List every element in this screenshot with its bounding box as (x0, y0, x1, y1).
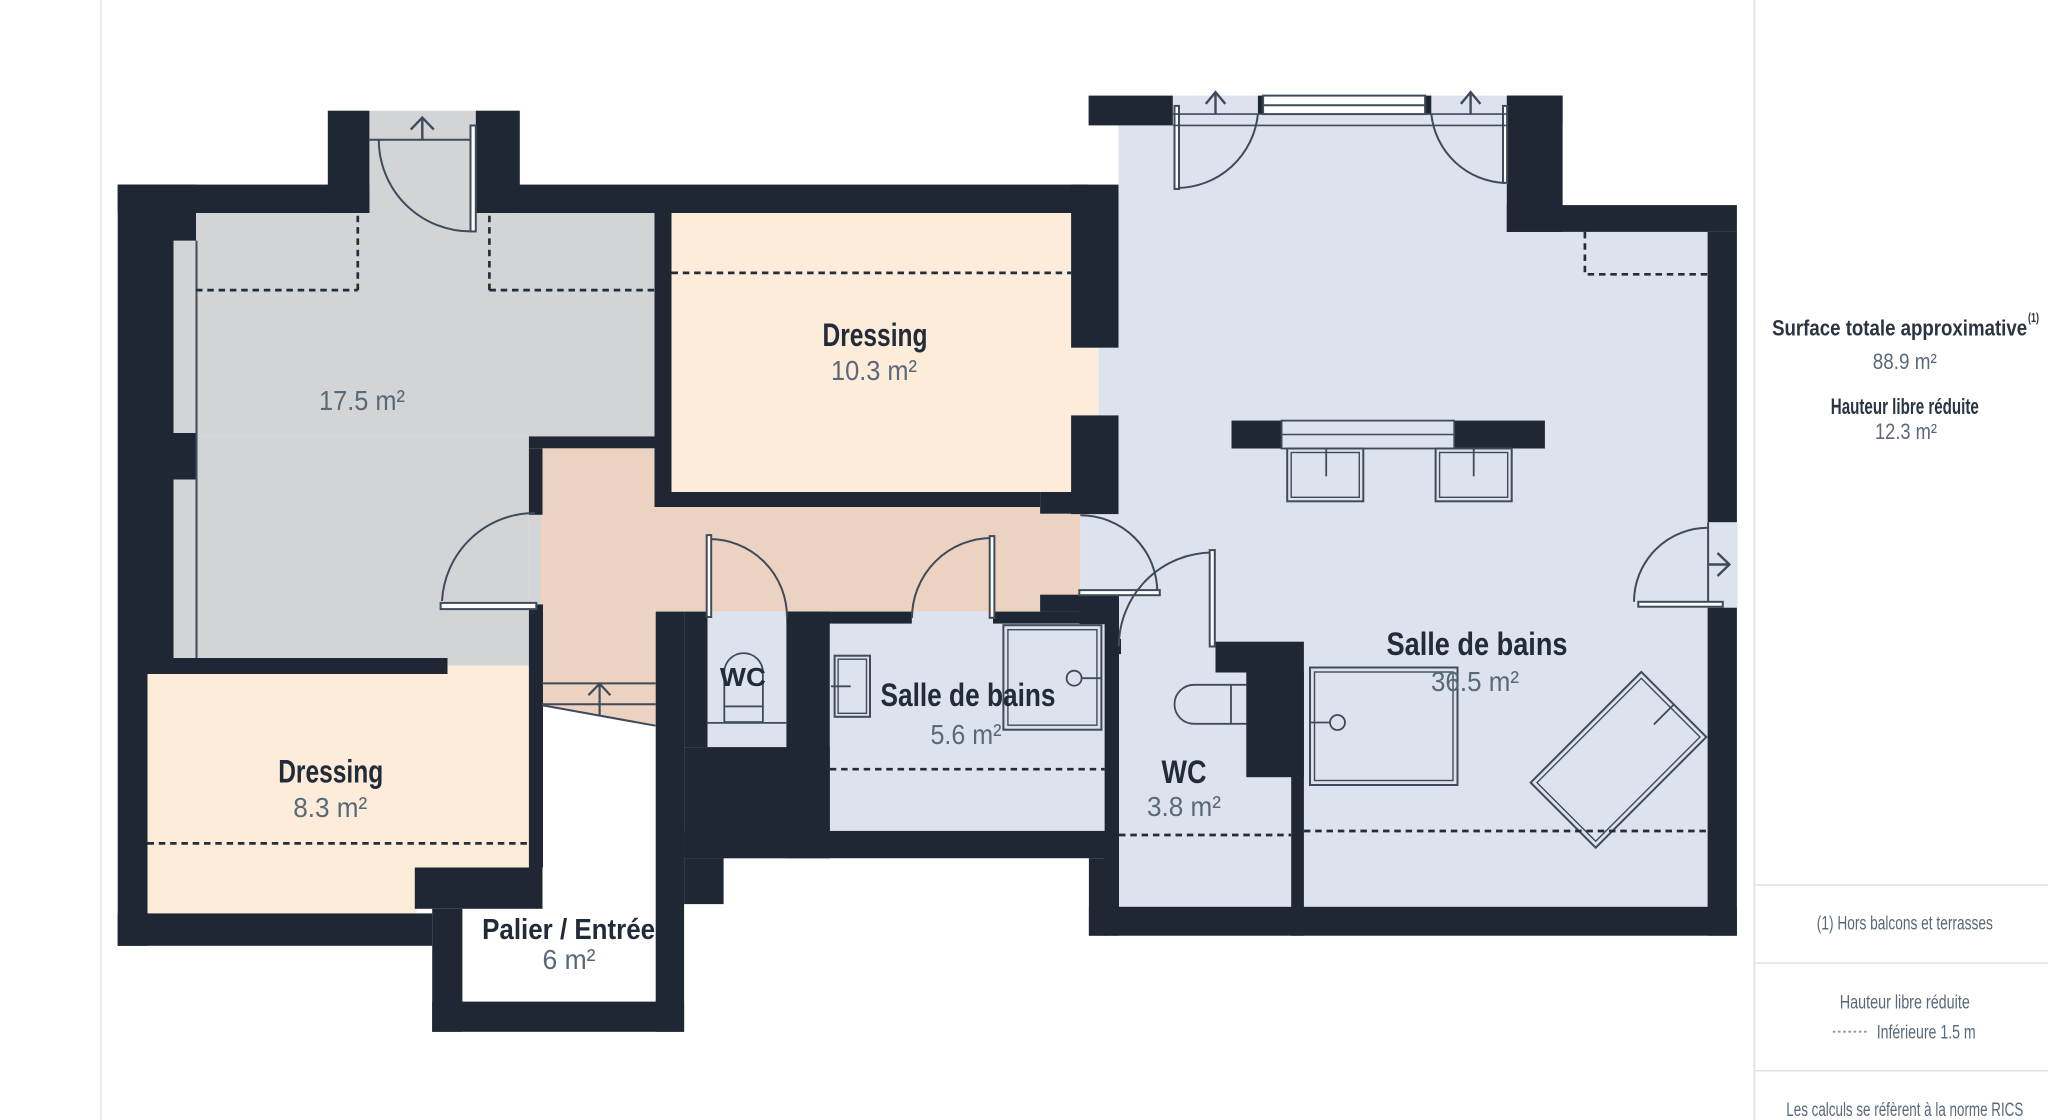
svg-text:88.9 m²: 88.9 m² (1873, 349, 1937, 374)
svg-text:8.3 m²: 8.3 m² (293, 792, 367, 823)
svg-text:WC: WC (720, 662, 766, 692)
svg-text:36.5 m²: 36.5 m² (1431, 666, 1519, 697)
svg-text:Salle de bains: Salle de bains (1387, 626, 1568, 662)
svg-text:Dressing: Dressing (278, 754, 383, 790)
svg-text:5.6 m²: 5.6 m² (931, 719, 1002, 750)
svg-text:Salle de bains: Salle de bains (881, 677, 1056, 713)
svg-text:12.3 m²: 12.3 m² (1875, 419, 1937, 444)
svg-text:Hauteur libre réduite: Hauteur libre réduite (1840, 993, 1970, 1014)
svg-text:(1) Hors balcons et terrasses: (1) Hors balcons et terrasses (1817, 914, 1993, 935)
svg-text:17.5 m²: 17.5 m² (319, 385, 405, 416)
svg-text:Palier / Entrée: Palier / Entrée (482, 914, 655, 946)
svg-text:Inférieure 1.5 m: Inférieure 1.5 m (1877, 1023, 1976, 1044)
svg-text:WC: WC (1162, 754, 1207, 790)
svg-text:Les calculs se réfèrent à la n: Les calculs se réfèrent à la norme RICS (1786, 1100, 2023, 1120)
svg-text:6 m²: 6 m² (543, 944, 596, 975)
svg-text:Hauteur libre réduite: Hauteur libre réduite (1831, 394, 1979, 419)
svg-text:3.8 m²: 3.8 m² (1147, 791, 1221, 822)
svg-text:(1): (1) (2028, 310, 2039, 325)
svg-text:Surface totale approximative: Surface totale approximative (1772, 316, 2027, 341)
svg-text:10.3 m²: 10.3 m² (831, 355, 917, 386)
svg-text:Dressing: Dressing (823, 317, 928, 353)
